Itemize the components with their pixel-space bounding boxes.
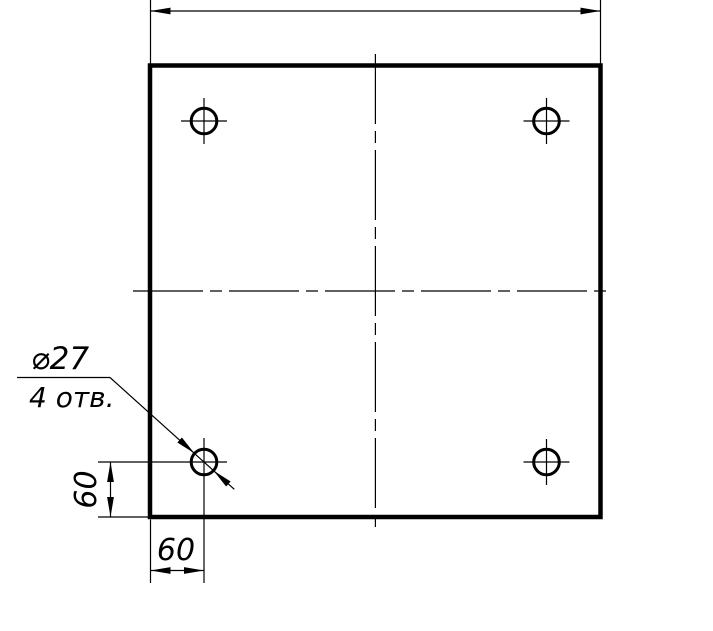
engineering-drawing: 60 60 ⌀27 4 отв. <box>0 0 713 631</box>
dimension-value-horizontal: 60 <box>157 533 195 568</box>
dimension-value-vertical: 60 <box>69 470 104 508</box>
top-dimension <box>151 0 601 64</box>
arrowhead-down-icon <box>107 497 114 517</box>
arrowhead-up-icon <box>107 462 114 482</box>
arrowhead-left-icon <box>151 8 171 15</box>
horizontal-dimension: 60 <box>151 520 205 584</box>
hole-bottom-right <box>524 439 570 485</box>
drawing-canvas: 60 60 ⌀27 4 отв. <box>0 0 713 631</box>
hole-callout: ⌀27 4 отв. <box>17 341 234 489</box>
plate-centerlines <box>133 54 613 527</box>
arrowhead-right-icon <box>581 8 601 15</box>
callout-diameter-label: ⌀27 <box>31 341 89 377</box>
hole-top-right <box>524 98 570 144</box>
vertical-dimension: 60 <box>69 462 152 517</box>
callout-holes-count-label: 4 отв. <box>29 381 115 414</box>
arrowhead-right-icon <box>184 567 204 574</box>
hole-top-left <box>181 98 227 144</box>
arrowhead-left-icon <box>151 567 171 574</box>
